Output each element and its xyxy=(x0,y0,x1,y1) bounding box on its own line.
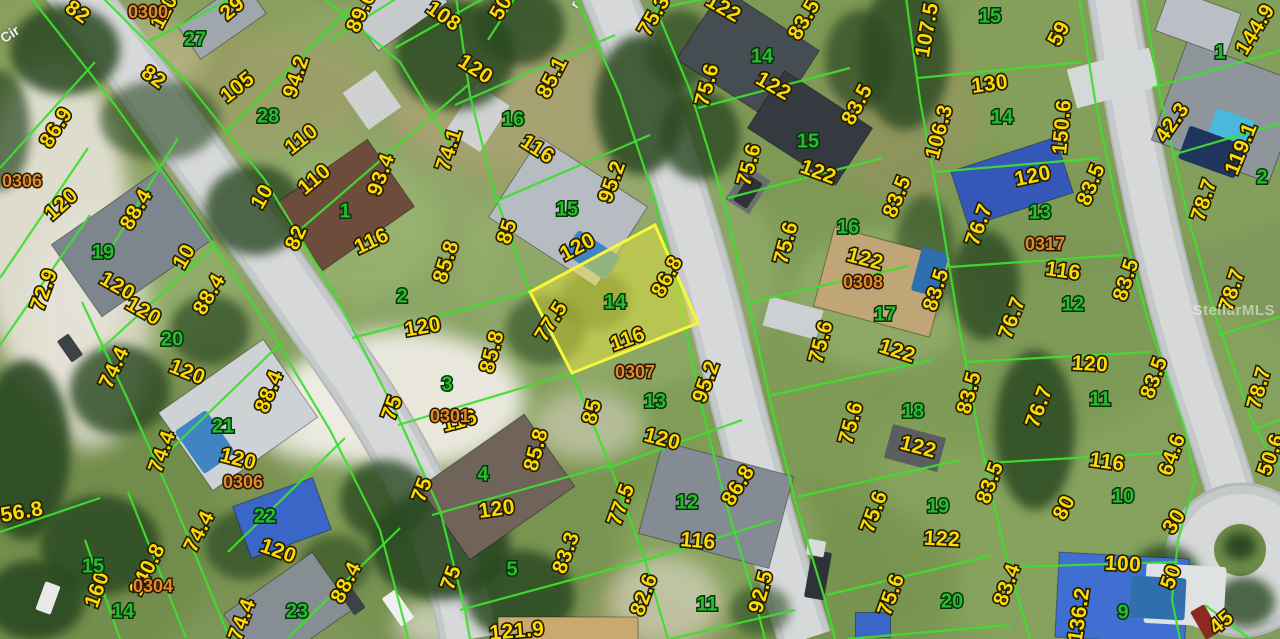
lot-number-label: 5 xyxy=(506,558,517,580)
block-number-label: 0304 xyxy=(133,576,173,596)
lot-number-label: 19 xyxy=(92,241,114,263)
lot-number-label: 20 xyxy=(941,590,963,612)
lot-number-label: 1 xyxy=(1214,41,1225,63)
dimension-label: 116 xyxy=(679,528,716,554)
lot-number-label: 18 xyxy=(902,400,924,422)
lot-number-label: 12 xyxy=(676,491,698,513)
lot-number-label: 12 xyxy=(1062,293,1084,315)
lot-number-label: 14 xyxy=(991,106,1014,128)
parcel-map-image[interactable]: 821102910594.28286.911089.61085012085.17… xyxy=(0,0,1280,639)
dimension-label: 116 xyxy=(1088,448,1126,476)
lot-number-label: 4 xyxy=(477,463,489,485)
lot-number-label: 11 xyxy=(696,593,717,615)
lot-number-label: 9 xyxy=(1117,601,1128,623)
lot-number-label: 14 xyxy=(751,45,774,67)
lot-number-label: 15 xyxy=(82,555,104,577)
lot-number-label: 13 xyxy=(644,390,666,412)
lot-number-label: 16 xyxy=(837,216,859,238)
dimension-label: 116 xyxy=(1044,257,1082,285)
dimension-label: 122 xyxy=(923,527,961,552)
tree-canopy xyxy=(100,80,220,160)
dimension-label: 121.9 xyxy=(488,617,545,639)
lot-number-label: 11 xyxy=(1089,388,1110,410)
lot-number-label: 23 xyxy=(286,600,308,622)
lot-number-label: 14 xyxy=(604,291,627,313)
block-number-label: 0317 xyxy=(1025,234,1065,254)
lot-number-label: 2 xyxy=(1256,166,1267,188)
lot-number-label: 28 xyxy=(257,105,279,127)
island-tree xyxy=(1224,532,1256,560)
lot-number-label: 22 xyxy=(254,505,276,527)
dimension-label: 100 xyxy=(1104,552,1142,577)
block-number-label: 0300 xyxy=(128,2,168,22)
tree-canopy xyxy=(995,350,1075,510)
lot-number-label: 3 xyxy=(441,373,452,395)
block-number-label: 0306 xyxy=(2,171,42,191)
aerial-parcel-map: 821102910594.28286.911089.61085012085.17… xyxy=(0,0,1280,639)
dimension-label: 78.7 xyxy=(1215,266,1250,314)
lot-number-label: 15 xyxy=(556,198,578,220)
tree-canopy xyxy=(10,5,120,95)
lot-number-label: 19 xyxy=(927,495,949,517)
lot-number-label: 15 xyxy=(979,5,1001,27)
lot-number-label: 21 xyxy=(212,415,234,437)
lot-number-label: 10 xyxy=(1112,485,1134,507)
block-number-label: 0307 xyxy=(615,362,655,382)
lot-number-label: 14 xyxy=(112,600,135,622)
block-number-label: 0306 xyxy=(223,472,263,492)
lot-number-label: 27 xyxy=(184,28,206,50)
dimension-label: 120 xyxy=(1071,352,1109,377)
lot-number-label: 2 xyxy=(396,285,407,307)
lot-number-label: 17 xyxy=(874,303,896,325)
lot-number-label: 13 xyxy=(1029,201,1051,223)
dimension-label: 150.6 xyxy=(1048,98,1076,155)
lot-number-label: 15 xyxy=(797,130,819,152)
lot-number-label: 20 xyxy=(161,328,183,350)
block-number-label: 0308 xyxy=(843,272,883,292)
lot-number-label: 1 xyxy=(339,200,350,222)
block-number-label: 0301 xyxy=(430,406,470,426)
lot-number-label: 16 xyxy=(502,108,524,130)
